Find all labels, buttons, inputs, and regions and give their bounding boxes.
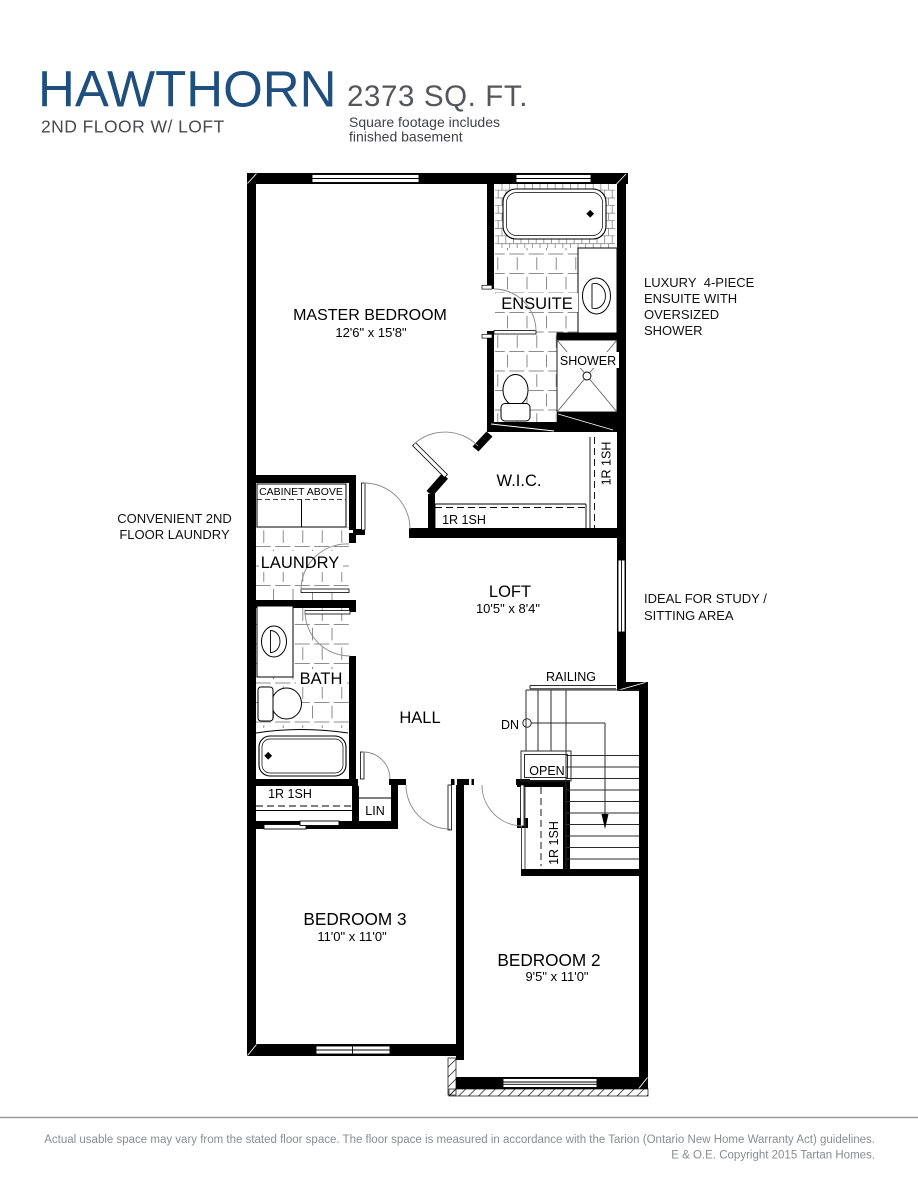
svg-text:OPEN: OPEN <box>529 764 564 778</box>
svg-text:9'5" x 11'0": 9'5" x 11'0" <box>525 969 588 984</box>
svg-text:11'0" x 11'0": 11'0" x 11'0" <box>317 929 387 944</box>
svg-text:Actual usable space may vary f: Actual usable space may vary from the st… <box>44 1134 875 1146</box>
svg-text:10'5" x 8'4": 10'5" x 8'4" <box>476 601 540 616</box>
svg-text:2ND FLOOR W/ LOFT: 2ND FLOOR W/ LOFT <box>41 117 225 137</box>
svg-text:HALL: HALL <box>399 709 440 727</box>
svg-text:LAUNDRY: LAUNDRY <box>261 554 340 572</box>
svg-text:LOFT: LOFT <box>489 583 531 601</box>
svg-text:ENSUITE: ENSUITE <box>501 295 573 313</box>
svg-text:1R 1SH: 1R 1SH <box>268 787 312 801</box>
svg-text:1R 1SH: 1R 1SH <box>600 442 614 486</box>
svg-text:MASTER BEDROOM: MASTER BEDROOM <box>293 307 447 324</box>
svg-text:OVERSIZED: OVERSIZED <box>644 307 719 322</box>
svg-text:12'6" x 15'8": 12'6" x 15'8" <box>335 325 407 340</box>
svg-text:SITTING AREA: SITTING AREA <box>644 608 734 623</box>
svg-text:IDEAL FOR STUDY /: IDEAL FOR STUDY / <box>644 591 767 606</box>
svg-text:LUXURY 4-PIECE: LUXURY 4-PIECE <box>644 275 755 290</box>
svg-text:E & O.E. Copyright 2015 Tartan: E & O.E. Copyright 2015 Tartan Homes. <box>671 1150 875 1162</box>
svg-text:BEDROOM 2: BEDROOM 2 <box>497 950 600 970</box>
svg-text:CABINET ABOVE: CABINET ABOVE <box>259 486 343 498</box>
svg-text:DN: DN <box>501 718 519 732</box>
svg-text:SHOWER: SHOWER <box>560 354 616 368</box>
svg-text:SHOWER: SHOWER <box>644 323 703 338</box>
svg-text:1R 1SH: 1R 1SH <box>442 513 486 527</box>
svg-text:ENSUITE WITH: ENSUITE WITH <box>644 291 737 306</box>
svg-text:RAILING: RAILING <box>546 670 596 684</box>
svg-text:HAWTHORN: HAWTHORN <box>38 61 336 118</box>
svg-text:BEDROOM 3: BEDROOM 3 <box>303 909 406 929</box>
svg-text:FLOOR LAUNDRY: FLOOR LAUNDRY <box>119 527 230 542</box>
svg-text:CONVENIENT 2ND: CONVENIENT 2ND <box>117 511 232 526</box>
svg-text:2373 SQ. FT.: 2373 SQ. FT. <box>347 80 528 113</box>
svg-text:1R 1SH: 1R 1SH <box>547 821 561 865</box>
svg-text:finished basement: finished basement <box>349 129 463 145</box>
svg-text:BATH: BATH <box>300 670 343 688</box>
svg-text:W.I.C.: W.I.C. <box>497 472 542 490</box>
svg-text:LIN: LIN <box>365 804 384 818</box>
